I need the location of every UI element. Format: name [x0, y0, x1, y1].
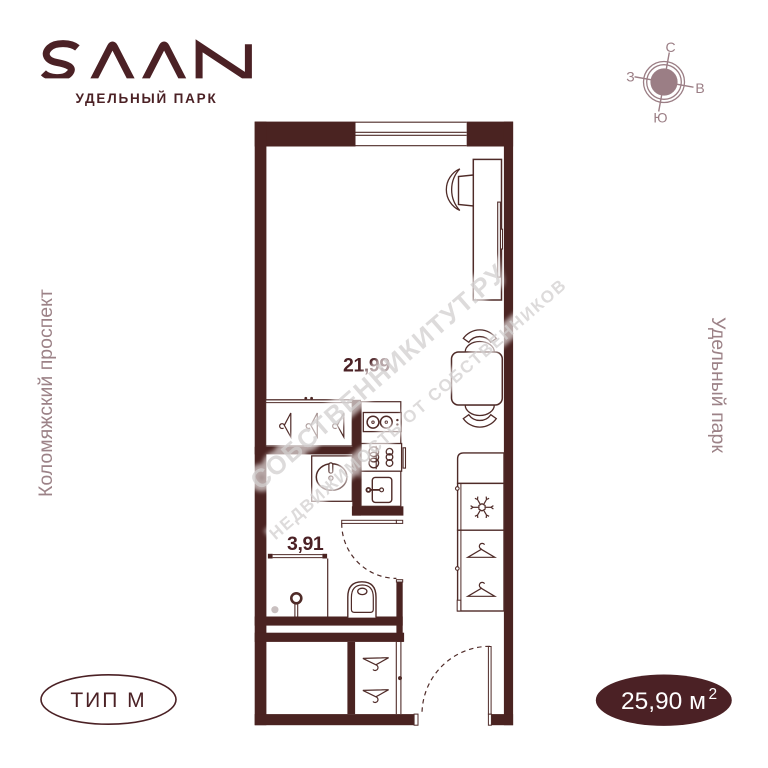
svg-text:ТИП М: ТИП М — [70, 689, 146, 712]
svg-text:2: 2 — [709, 686, 718, 703]
svg-text:С: С — [665, 39, 675, 55]
svg-text:Ю: Ю — [653, 110, 667, 126]
svg-text:25,90 м: 25,90 м — [621, 688, 706, 715]
svg-text:Коломяжский проспект: Коломяжский проспект — [35, 289, 57, 497]
svg-text:УДЕЛЬНЫЙ ПАРК: УДЕЛЬНЫЙ ПАРК — [75, 91, 217, 106]
svg-text:Удельный парк: Удельный парк — [707, 317, 729, 453]
svg-text:З: З — [626, 69, 634, 85]
svg-text:В: В — [695, 80, 704, 96]
svg-text:3,91: 3,91 — [287, 533, 324, 555]
